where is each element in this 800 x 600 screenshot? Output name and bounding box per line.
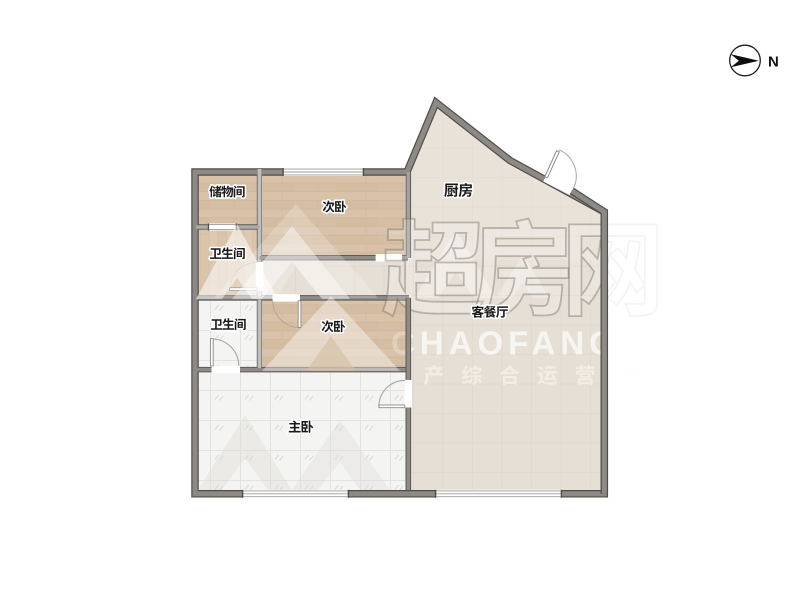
svg-text:N: N: [768, 54, 779, 71]
